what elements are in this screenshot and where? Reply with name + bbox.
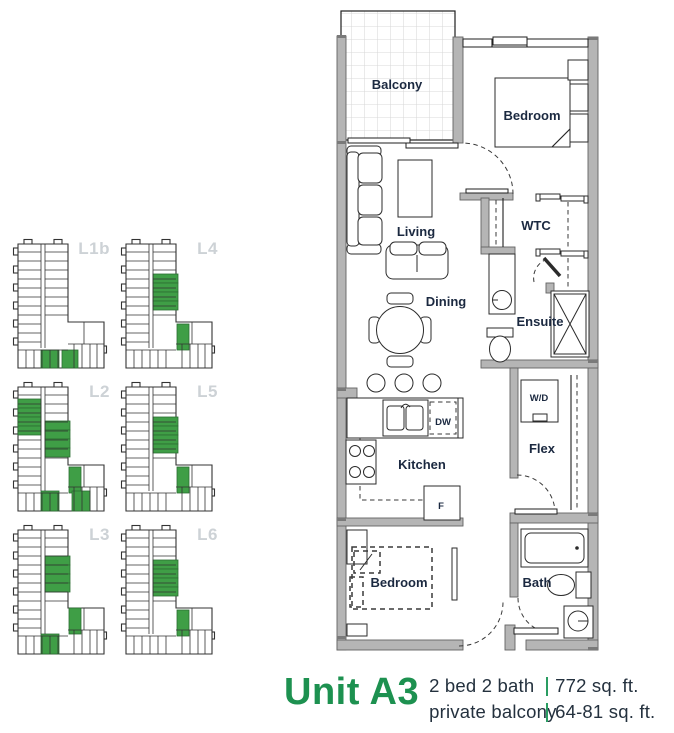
room-label-ensuite: Ensuite (517, 314, 564, 329)
flex-door-swing (517, 475, 555, 513)
spec-row-beds-area: 2 bed 2 bath 772 sq. ft. (429, 673, 655, 699)
bathtub-icon (521, 529, 588, 567)
room-label-wd: W/D (530, 393, 549, 404)
room-label-dw: DW (435, 417, 451, 428)
dining-table-icon (369, 293, 431, 367)
room-label-living: Living (397, 224, 435, 239)
room-label-dining: Dining (426, 294, 466, 309)
keyplan-label-L6: L6 (197, 525, 218, 545)
bedroom2-door-swing (459, 602, 503, 646)
divider-bar (546, 677, 548, 696)
main-floorplan: Balcony Bedroom Living WTC Dining Ensuit… (330, 4, 674, 660)
keyplan-L3: L3 (12, 524, 108, 658)
room-label-bedroom-1: Bedroom (503, 108, 560, 123)
room-label-bath: Bath (523, 575, 552, 590)
keyplan-L6: L6 (120, 524, 216, 658)
spec-balcony-area: 64-81 sq. ft. (555, 701, 655, 723)
loveseat-icon (386, 242, 448, 279)
room-label-flex: Flex (529, 441, 556, 456)
bedroom2-door-leaf (452, 548, 457, 600)
flex-threshold (515, 509, 557, 514)
ensuite-toilet-icon (487, 328, 513, 362)
ensuite-vanity-icon (489, 254, 515, 314)
bar-stools (367, 374, 441, 392)
spec-area: 772 sq. ft. (555, 675, 655, 697)
unit-title: Unit A3 (284, 668, 419, 716)
ensuite-door (534, 258, 560, 282)
spec-bed-bath: 2 bed 2 bath (429, 675, 539, 697)
room-label-balcony: Balcony (372, 77, 423, 92)
sofa-icon (347, 146, 382, 254)
keyplan-L2: L2 (12, 381, 108, 515)
room-label-fridge: F (438, 501, 444, 512)
balcony-area (341, 11, 455, 140)
bath-toilet-icon (564, 606, 593, 638)
spec-balcony: private balcony (429, 701, 539, 723)
coffee-table-icon (398, 160, 432, 217)
entry-threshold (514, 628, 558, 634)
bed-icon (495, 60, 588, 147)
keyplan-L5: L5 (120, 381, 216, 515)
room-label-bedroom-2: Bedroom (370, 575, 427, 590)
flex-closet (571, 375, 577, 510)
keyplan-label-L1b: L1b (78, 239, 110, 259)
unit-summary: Unit A3 2 bed 2 bath 772 sq. ft. private… (284, 668, 655, 725)
unit-specs: 2 bed 2 bath 772 sq. ft. private balcony… (429, 668, 655, 725)
room-label-wtc: WTC (521, 218, 551, 233)
divider-bar (546, 703, 548, 722)
keyplan-label-L2: L2 (89, 382, 110, 402)
stove-icon (346, 440, 376, 484)
keyplan-grid: L1bL4L2L5L3L6 (12, 238, 216, 658)
keyplan-label-L3: L3 (89, 525, 110, 545)
bedroom1-door-swing (462, 143, 513, 194)
spec-row-balcony-area: private balcony 64-81 sq. ft. (429, 699, 655, 725)
keyplan-label-L5: L5 (197, 382, 218, 402)
keyplan-label-L4: L4 (197, 239, 218, 259)
room-label-kitchen: Kitchen (398, 457, 446, 472)
keyplan-L1b: L1b (12, 238, 108, 372)
keyplan-L4: L4 (120, 238, 216, 372)
kitchen-sink-icon (383, 400, 428, 436)
bath-sink-icon (548, 572, 592, 598)
